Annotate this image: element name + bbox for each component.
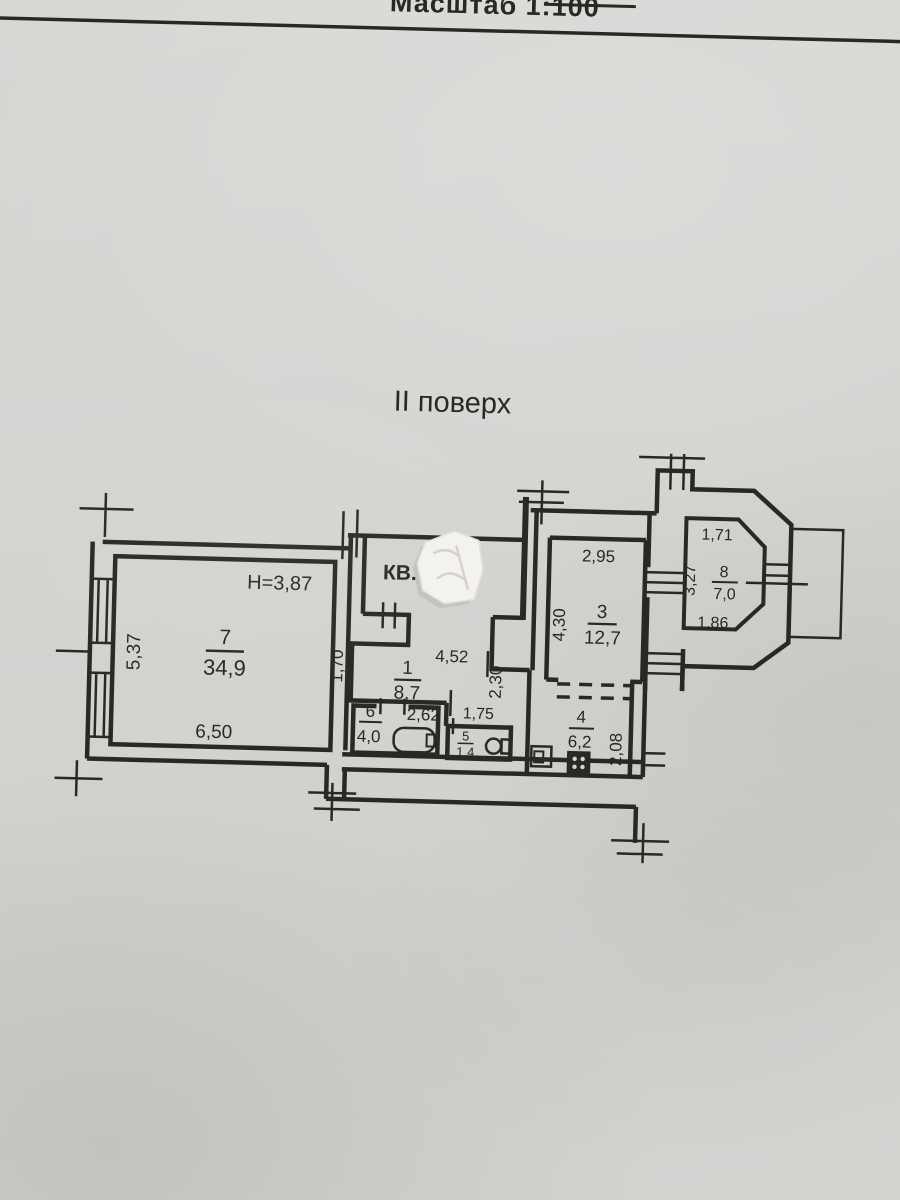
floor-plan-drawing: Масштаб 1:100 II поверх <box>0 0 900 1200</box>
toilet-icon <box>486 738 511 754</box>
dim-4-30: 4,30 <box>549 608 569 642</box>
dim-1-75: 1,75 <box>463 705 495 723</box>
room4-area: 6,2 <box>568 732 592 752</box>
room3-number: 3 <box>596 602 607 623</box>
dim-2-08: 2,08 <box>606 733 626 767</box>
dim-1-70: 1,70 <box>327 649 347 683</box>
white-sticker <box>409 528 486 612</box>
dim-5-37: 5,37 <box>123 633 145 671</box>
room5-area: 1,4 <box>456 744 474 759</box>
header-rule <box>0 17 900 44</box>
room5-number: 5 <box>462 728 470 743</box>
room1-fraction-line <box>394 680 421 681</box>
dim-1-86: 1,86 <box>697 614 729 632</box>
room7-fraction-line <box>206 651 244 652</box>
room4-number: 4 <box>576 707 586 726</box>
sink-icon <box>531 746 552 767</box>
room4-fraction-line <box>569 728 594 729</box>
room8-fraction-line <box>712 582 738 583</box>
apartment-label: КВ. <box>383 561 417 585</box>
floor-title: II поверх <box>393 385 512 420</box>
photographed-floor-plan-page: Масштаб 1:100 II поверх <box>0 0 900 1200</box>
room8-area: 7,0 <box>713 586 736 604</box>
stove-icon <box>568 752 590 774</box>
ceiling-height-note: H=3,87 <box>247 572 313 596</box>
room7-area: 34,9 <box>203 655 246 681</box>
room8-number: 8 <box>719 564 728 581</box>
dim-2-62: 2,62 <box>407 705 441 725</box>
room1-number: 1 <box>402 658 413 679</box>
dim-2-30: 2,30 <box>486 665 506 699</box>
dashed-opening <box>557 684 631 699</box>
room7-number: 7 <box>219 626 231 649</box>
room1-area: 8,7 <box>393 683 420 705</box>
room6-fraction-line <box>359 722 382 723</box>
room6-number: 6 <box>365 702 375 721</box>
dim-3-27: 3,27 <box>682 564 700 596</box>
dim-6-50: 6,50 <box>195 721 233 743</box>
dim-4-52: 4,52 <box>435 647 469 667</box>
bathtub-icon <box>393 728 435 753</box>
room3-fraction-line <box>588 624 617 625</box>
room6-area: 4,0 <box>357 727 381 747</box>
room3-area: 12,7 <box>584 628 622 650</box>
dim-2-95: 2,95 <box>582 546 616 566</box>
dim-1-71: 1,71 <box>701 527 733 545</box>
